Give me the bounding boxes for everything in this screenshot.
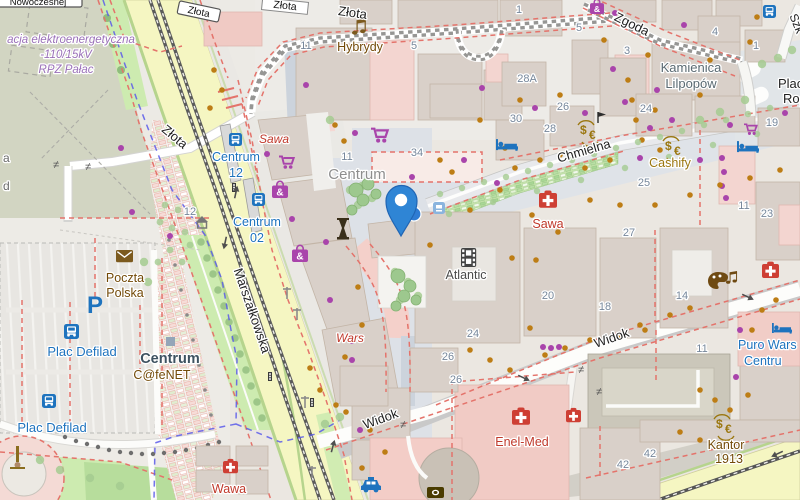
svg-text:Centrum: Centrum — [212, 150, 260, 164]
svg-text:≠: ≠ — [596, 386, 602, 398]
svg-text:20: 20 — [542, 290, 554, 302]
svg-text:$: $ — [580, 123, 587, 137]
svg-text:≠: ≠ — [578, 364, 584, 376]
svg-text:26: 26 — [442, 351, 454, 363]
svg-text:Centrum: Centrum — [328, 166, 386, 183]
svg-text:11: 11 — [341, 151, 352, 163]
svg-text:≠: ≠ — [400, 419, 406, 431]
svg-text:Poczta: Poczta — [106, 271, 144, 285]
svg-text:Kamienica: Kamienica — [661, 60, 722, 75]
svg-text:5: 5 — [411, 40, 417, 52]
svg-text:11: 11 — [696, 343, 707, 355]
svg-text:Sawa: Sawa — [259, 132, 289, 146]
svg-text:24: 24 — [640, 103, 652, 115]
svg-text:Rog: Rog — [783, 91, 800, 106]
svg-text:28A: 28A — [517, 73, 537, 85]
svg-text:Plac Defilad: Plac Defilad — [47, 344, 116, 359]
svg-text:Enel-Med: Enel-Med — [495, 435, 549, 449]
svg-text:&: & — [594, 4, 600, 14]
svg-text:$: $ — [716, 417, 723, 431]
svg-text:Centrum: Centrum — [233, 215, 281, 229]
svg-text:Centru: Centru — [744, 354, 782, 368]
svg-text:1913: 1913 — [715, 452, 743, 466]
svg-text:19: 19 — [766, 117, 778, 129]
svg-text:Centrum: Centrum — [140, 351, 200, 367]
svg-text:d: d — [3, 179, 10, 193]
svg-text:1: 1 — [516, 4, 522, 16]
svg-text:Wawa: Wawa — [212, 482, 246, 496]
svg-text:23: 23 — [761, 208, 773, 220]
svg-text:28: 28 — [544, 123, 556, 135]
svg-text:Lilpopów: Lilpopów — [665, 76, 717, 91]
svg-text:Plac P: Plac P — [778, 76, 800, 91]
svg-text:a: a — [3, 151, 10, 165]
svg-text:18: 18 — [599, 301, 611, 313]
svg-text:42: 42 — [644, 448, 656, 460]
svg-text:12: 12 — [229, 166, 243, 180]
svg-text:€: € — [725, 422, 732, 436]
svg-text:42: 42 — [617, 459, 629, 471]
svg-text:30: 30 — [510, 113, 522, 125]
svg-text:acja elektroenergetyczna: acja elektroenergetyczna — [7, 34, 135, 46]
svg-text:26: 26 — [557, 101, 569, 113]
svg-text:Plac Defilad: Plac Defilad — [17, 420, 86, 435]
svg-text:1: 1 — [753, 40, 759, 52]
svg-text:25: 25 — [638, 177, 650, 189]
svg-text:26: 26 — [450, 374, 462, 386]
svg-text:11: 11 — [300, 40, 311, 52]
svg-text:P: P — [87, 292, 103, 319]
svg-text:-110/15kV: -110/15kV — [40, 49, 93, 61]
svg-text:Atlantic: Atlantic — [446, 268, 487, 282]
svg-text:$: $ — [665, 139, 672, 153]
svg-text:02: 02 — [250, 231, 264, 245]
svg-text:24: 24 — [467, 328, 479, 340]
svg-text:4: 4 — [712, 26, 718, 38]
svg-text:Nowoczesnej: Nowoczesnej — [10, 0, 67, 8]
svg-text:&: & — [296, 252, 303, 263]
svg-text:11: 11 — [738, 200, 749, 212]
svg-text:≠: ≠ — [85, 161, 91, 173]
svg-text:Cashify: Cashify — [649, 156, 691, 170]
svg-text:34: 34 — [411, 147, 423, 159]
svg-text:Hybrydy: Hybrydy — [337, 40, 384, 54]
svg-text:RPZ Pałac: RPZ Pałac — [39, 64, 94, 76]
svg-text:Puro Wars: Puro Wars — [738, 338, 797, 352]
svg-text:Polska: Polska — [106, 286, 144, 300]
svg-text:&: & — [276, 188, 283, 199]
svg-text:12: 12 — [184, 206, 196, 218]
svg-text:Sawa: Sawa — [532, 217, 563, 231]
svg-text:C@feNET: C@feNET — [133, 368, 191, 382]
svg-text:27: 27 — [623, 227, 635, 239]
svg-text:Kantor: Kantor — [708, 438, 745, 452]
svg-text:≠: ≠ — [53, 159, 59, 171]
svg-text:14: 14 — [676, 290, 688, 302]
svg-text:3: 3 — [624, 45, 630, 57]
svg-text:5: 5 — [576, 22, 582, 34]
svg-text:Wars: Wars — [336, 331, 364, 345]
